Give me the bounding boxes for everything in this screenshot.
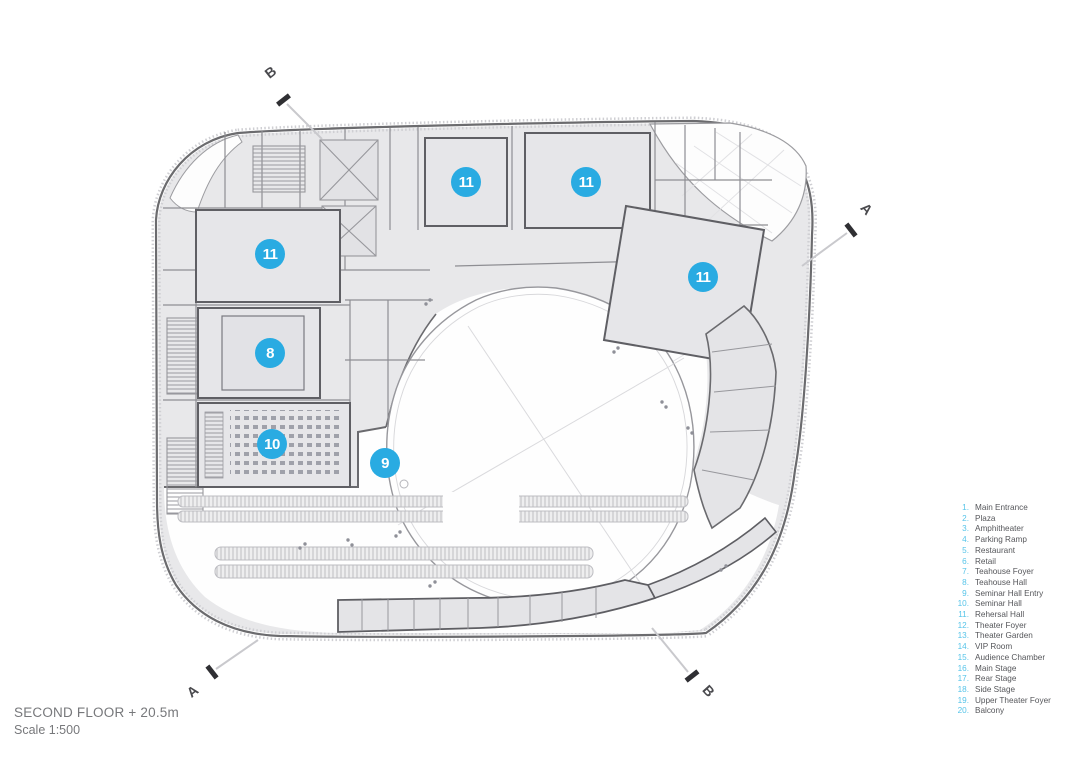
floor-plan-drawing: B A A B bbox=[0, 0, 1080, 778]
room-marker-rehearsal-hall: 11 bbox=[255, 239, 285, 269]
legend-item: 17.Rear Stage bbox=[952, 674, 1051, 685]
title-block: SECOND FLOOR + 20.5m Scale 1:500 bbox=[14, 705, 179, 737]
section-letter: B bbox=[699, 682, 718, 700]
legend-item: 20.Balcony bbox=[952, 706, 1051, 717]
room-marker-rehearsal-hall: 11 bbox=[571, 167, 601, 197]
floor-title: SECOND FLOOR + 20.5m bbox=[14, 705, 179, 720]
legend: 1.Main Entrance 2.Plaza 3.Amphitheater 4… bbox=[952, 503, 1051, 717]
legend-item: 6.Retail bbox=[952, 557, 1051, 568]
room-marker-rehearsal-hall: 11 bbox=[451, 167, 481, 197]
legend-item: 5.Restaurant bbox=[952, 546, 1051, 557]
legend-item: 11.Rehersal Hall bbox=[952, 610, 1051, 621]
section-letter: B bbox=[261, 63, 279, 82]
legend-item: 2.Plaza bbox=[952, 514, 1051, 525]
floor-plan-page: B A A B 11 11 11 11 8 10 9 1.Main Entran… bbox=[0, 0, 1080, 778]
drawing-scale: Scale 1:500 bbox=[14, 723, 179, 737]
legend-item: 14.VIP Room bbox=[952, 642, 1051, 653]
legend-item: 12.Theater Foyer bbox=[952, 621, 1051, 632]
legend-item: 4.Parking Ramp bbox=[952, 535, 1051, 546]
legend-item: 7.Teahouse Foyer bbox=[952, 567, 1051, 578]
section-marker-a-bottom-left: A bbox=[184, 640, 258, 701]
legend-item: 18.Side Stage bbox=[952, 685, 1051, 696]
legend-item: 19.Upper Theater Foyer bbox=[952, 696, 1051, 707]
legend-item: 1.Main Entrance bbox=[952, 503, 1051, 514]
legend-item: 16.Main Stage bbox=[952, 664, 1051, 675]
section-marker-b-bottom: B bbox=[652, 628, 718, 700]
legend-item: 8.Teahouse Hall bbox=[952, 578, 1051, 589]
legend-item: 9.Seminar Hall Entry bbox=[952, 589, 1051, 600]
legend-item: 13.Theater Garden bbox=[952, 631, 1051, 642]
section-letter: A bbox=[857, 200, 876, 218]
section-letter: A bbox=[184, 682, 202, 701]
legend-item: 10.Seminar Hall bbox=[952, 599, 1051, 610]
section-cut-bar bbox=[205, 665, 218, 680]
legend-item: 15.Audience Chamber bbox=[952, 653, 1051, 664]
legend-item: 3.Amphitheater bbox=[952, 524, 1051, 535]
room-marker-rehearsal-hall: 11 bbox=[688, 262, 718, 292]
room-marker-seminar-hall: 10 bbox=[257, 429, 287, 459]
room-marker-seminar-hall-entry: 9 bbox=[370, 448, 400, 478]
room-marker-teahouse-hall: 8 bbox=[255, 338, 285, 368]
section-cut-bar bbox=[844, 223, 857, 238]
